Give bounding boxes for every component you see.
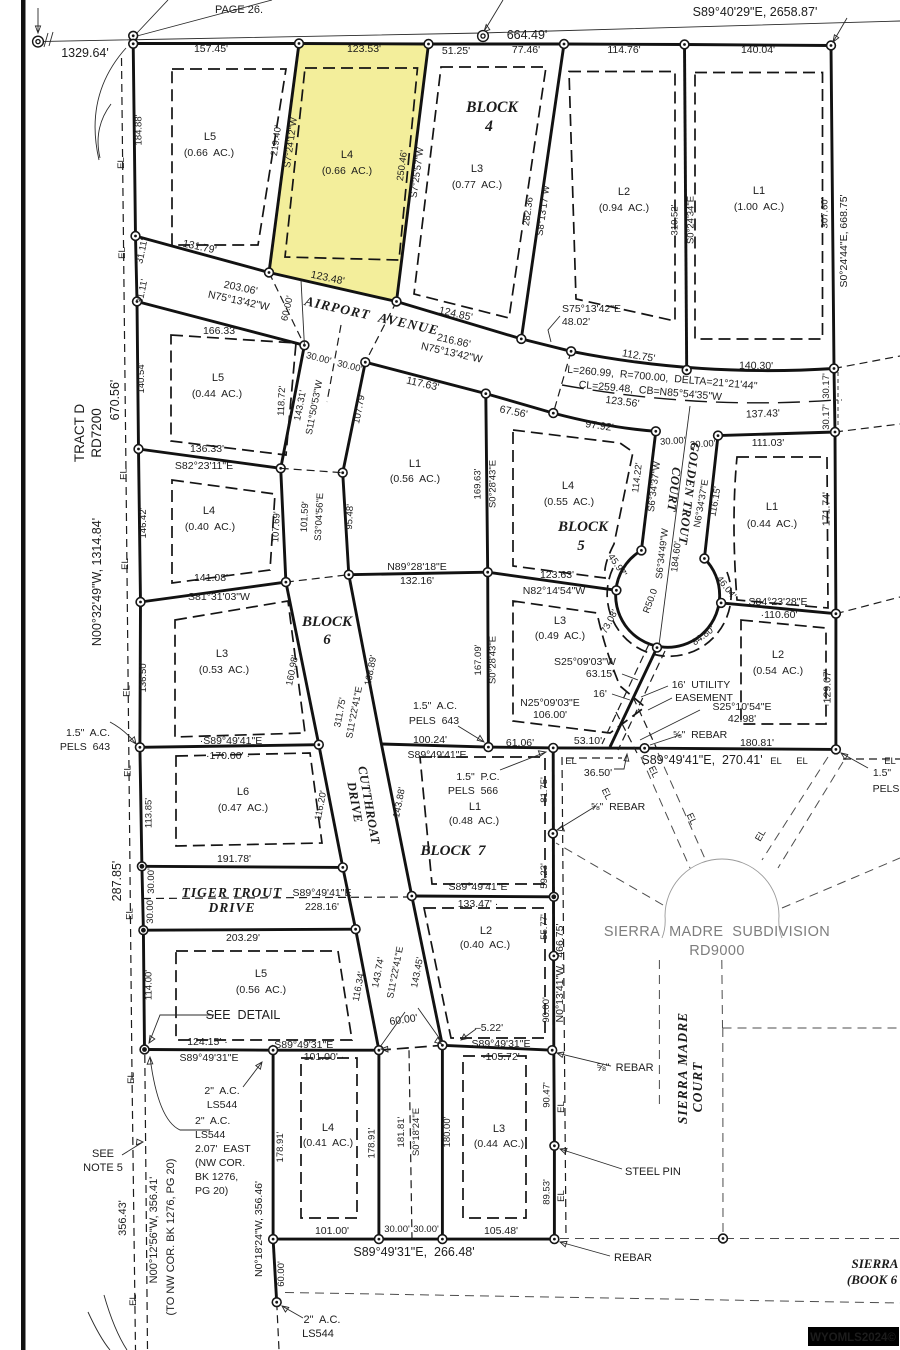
svg-text:STEEL PIN: STEEL PIN: [625, 1166, 681, 1178]
svg-text:S75°13'42"E: S75°13'42"E: [562, 303, 621, 315]
svg-text:N00°32'49"W, 1314.84': N00°32'49"W, 1314.84': [90, 518, 104, 646]
svg-text:PELS 643: PELS 643: [409, 715, 459, 727]
svg-text:S89°49'31"E: S89°49'31"E: [472, 1038, 531, 1050]
svg-text:RD9000: RD9000: [689, 943, 745, 959]
svg-text:PELS 566: PELS 566: [448, 785, 498, 797]
svg-text:NOTE 5: NOTE 5: [83, 1162, 123, 1174]
svg-text:WYOMLS2024©: WYOMLS2024©: [810, 1332, 896, 1344]
svg-text:(0.55 AC.): (0.55 AC.): [544, 496, 594, 508]
svg-text:S84°23'28"E: S84°23'28"E: [749, 596, 808, 608]
svg-text:PELS: PELS: [873, 783, 900, 795]
svg-text:L3: L3: [471, 163, 483, 175]
svg-text:⅝" REBAR: ⅝" REBAR: [591, 801, 646, 813]
svg-text:EL: EL: [119, 468, 130, 480]
svg-text:310.52': 310.52': [670, 204, 681, 235]
svg-text:30.00': 30.00': [384, 1224, 410, 1235]
svg-text:124.15' ·: 124.15' ·: [187, 1036, 228, 1048]
svg-text:101.00': 101.00': [315, 1225, 349, 1237]
svg-text:167.09': 167.09': [473, 644, 484, 675]
svg-text:(0.94 AC.): (0.94 AC.): [599, 202, 649, 214]
svg-text:2.07' EAST: 2.07' EAST: [195, 1143, 251, 1155]
svg-text:30.00': 30.00': [660, 435, 686, 448]
svg-text:L5: L5: [212, 372, 224, 384]
svg-text:48.02': 48.02': [562, 316, 590, 328]
svg-text:S89°49'41"E: S89°49'41"E: [408, 749, 467, 761]
svg-text:157.45': 157.45': [194, 43, 228, 55]
svg-text:1.5": 1.5": [873, 767, 892, 779]
svg-text:51.25': 51.25': [442, 45, 470, 57]
svg-text:287.85': 287.85': [110, 861, 124, 902]
svg-text:53.10': 53.10': [574, 735, 602, 747]
svg-text:(0.56 AC.): (0.56 AC.): [236, 984, 286, 996]
svg-text:101.59': 101.59': [299, 501, 312, 533]
svg-text:664.49': 664.49': [507, 28, 548, 42]
svg-text:⅝" REBAR: ⅝" REBAR: [673, 729, 728, 741]
svg-text:BLOCK: BLOCK: [465, 99, 519, 116]
svg-text:(0.44 AC.): (0.44 AC.): [192, 388, 242, 400]
svg-text:EL: EL: [117, 247, 128, 259]
svg-text:SIERRA MADRE SUBDIVISION: SIERRA MADRE SUBDIVISION: [604, 924, 830, 940]
svg-text:95.48': 95.48': [344, 504, 356, 530]
svg-text:166.33': 166.33': [203, 325, 237, 337]
svg-text:L4: L4: [322, 1122, 334, 1134]
svg-text:191.78': 191.78': [217, 853, 251, 865]
svg-text:105.48': 105.48': [484, 1225, 518, 1237]
svg-text:LS544: LS544: [195, 1129, 226, 1141]
svg-text:EL: EL: [125, 908, 136, 920]
svg-text:114.00': 114.00': [144, 970, 155, 1000]
svg-text:S0°28'43"E: S0°28'43"E: [488, 636, 499, 684]
svg-text:EL: EL: [128, 1294, 139, 1306]
svg-text:EL: EL: [884, 756, 896, 767]
svg-text:·170.00' ·: ·170.00' ·: [206, 750, 250, 762]
svg-text:EL: EL: [796, 756, 808, 767]
svg-text:16': 16': [593, 688, 607, 700]
svg-text:181.81': 181.81': [396, 1116, 407, 1147]
svg-text:N00°12'56"W, 356.41': N00°12'56"W, 356.41': [148, 1177, 160, 1284]
svg-text:140.30': 140.30': [739, 360, 773, 373]
svg-text:S89°49'31"E: S89°49'31"E: [180, 1052, 239, 1064]
svg-text:S89°49'31"E, 266.48': S89°49'31"E, 266.48': [353, 1245, 474, 1259]
svg-text:N89°28'18"E: N89°28'18"E: [387, 561, 447, 573]
svg-text:111.03': 111.03': [752, 437, 785, 449]
svg-text:(0.53 AC.): (0.53 AC.): [199, 664, 249, 676]
svg-text:184.88': 184.88': [134, 114, 145, 145]
svg-text:BK 1276,: BK 1276,: [195, 1171, 238, 1183]
svg-text:(0.49 AC.): (0.49 AC.): [535, 630, 585, 642]
svg-text:TRACT D: TRACT D: [72, 404, 87, 463]
svg-text:BLOCK: BLOCK: [301, 614, 353, 630]
svg-text:EL: EL: [122, 685, 133, 697]
svg-text:L2: L2: [618, 186, 630, 198]
svg-text:S82°23'11"E: S82°23'11"E: [175, 460, 233, 472]
svg-text:PELS 643: PELS 643: [60, 741, 110, 753]
svg-text:118.72': 118.72': [276, 385, 289, 416]
svg-text:670.56': 670.56': [108, 380, 122, 421]
svg-text:TIGER TROUT: TIGER TROUT: [182, 885, 283, 900]
svg-text:171.74': 171.74': [821, 492, 833, 526]
svg-text:1.5" A.C.: 1.5" A.C.: [66, 727, 110, 739]
svg-text:2" A.C.: 2" A.C.: [195, 1115, 230, 1127]
svg-text:36.50': 36.50': [584, 767, 612, 779]
svg-text:178.91': 178.91': [275, 1131, 286, 1162]
svg-text:(0.54 AC.): (0.54 AC.): [753, 665, 803, 677]
svg-text:42.98': 42.98': [728, 713, 756, 725]
svg-text:30.00': 30.00': [413, 1224, 439, 1235]
svg-text:S0°18'24"E: S0°18'24"E: [411, 1108, 422, 1156]
svg-text:132.16': 132.16': [400, 575, 434, 587]
svg-text:(TO NW COR. BK 1276, PG 20): (TO NW COR. BK 1276, PG 20): [165, 1159, 177, 1316]
svg-text:L2: L2: [772, 649, 784, 661]
svg-text:89.53': 89.53': [542, 1179, 553, 1205]
svg-text:L4: L4: [562, 480, 574, 492]
svg-text:(0.44 AC.): (0.44 AC.): [747, 518, 797, 530]
svg-text:(0.66 AC.): (0.66 AC.): [184, 147, 234, 159]
svg-text:30.00': 30.00': [146, 868, 157, 894]
svg-text:16' UTILITY: 16' UTILITY: [672, 679, 731, 691]
svg-text:PAGE 26.: PAGE 26.: [215, 4, 263, 16]
svg-text:140.04': 140.04': [741, 44, 775, 56]
svg-text:L5: L5: [255, 968, 267, 980]
svg-text:307.60': 307.60': [820, 197, 831, 228]
svg-text:EL: EL: [123, 765, 134, 777]
svg-text:L4: L4: [341, 149, 353, 161]
svg-text:PG 20): PG 20): [195, 1185, 228, 1197]
svg-text:30.17': 30.17': [821, 373, 832, 399]
svg-text:S89°49'41"E, 270.41': S89°49'41"E, 270.41': [641, 753, 762, 767]
svg-text:S0°24'34"E: S0°24'34"E: [686, 196, 697, 244]
svg-text:L1: L1: [753, 185, 765, 197]
svg-text:SIERRA: SIERRA: [852, 1256, 899, 1271]
svg-text:5: 5: [577, 538, 585, 554]
svg-text:EL: EL: [116, 157, 127, 169]
svg-text:(0.56 AC.): (0.56 AC.): [390, 473, 440, 485]
svg-text:(0.40 AC.): (0.40 AC.): [185, 521, 235, 533]
svg-text:RD7200: RD7200: [89, 408, 104, 458]
svg-text:90.47': 90.47': [542, 1082, 553, 1108]
svg-text:63.15': 63.15': [586, 668, 614, 680]
svg-text:2" A.C.: 2" A.C.: [204, 1085, 239, 1097]
svg-text:–5.22': –5.22': [475, 1022, 503, 1034]
svg-text:137.43': 137.43': [746, 407, 781, 420]
svg-text:·110.60': ·110.60': [761, 609, 798, 621]
svg-text:S89°40'29"E, 2658.87': S89°40'29"E, 2658.87': [693, 5, 818, 19]
svg-text:169.63': 169.63': [473, 468, 484, 499]
svg-text:114.76': 114.76': [607, 44, 640, 56]
svg-text:141.08': 141.08': [194, 572, 228, 584]
svg-text:228.16': 228.16': [305, 901, 339, 913]
svg-text:L5: L5: [204, 131, 216, 143]
svg-text:203.29': 203.29': [226, 932, 260, 944]
svg-text:LS544: LS544: [207, 1099, 238, 1111]
svg-text:2" A.C.: 2" A.C.: [304, 1314, 341, 1326]
svg-text:SEE: SEE: [92, 1148, 114, 1160]
svg-text:123.63': 123.63': [540, 569, 574, 581]
svg-text:1329.64': 1329.64': [61, 46, 109, 60]
svg-text:·S89°49'31"E: ·S89°49'31"E: [271, 1039, 333, 1051]
svg-text:(0.48 AC.): (0.48 AC.): [449, 815, 499, 827]
svg-text:30.00': 30.00': [145, 898, 156, 924]
svg-text:N82°14'54"W: N82°14'54"W: [523, 585, 586, 597]
svg-text:180.81': 180.81': [740, 737, 774, 749]
svg-text:N25°09'03"E: N25°09'03"E: [520, 697, 580, 709]
svg-text:178.91': 178.91': [367, 1127, 378, 1158]
svg-text:(NW COR.: (NW COR.: [195, 1157, 245, 1169]
svg-text:(0.66 AC.): (0.66 AC.): [322, 165, 372, 177]
svg-text:113.85': 113.85': [144, 798, 155, 828]
svg-text:L3: L3: [554, 615, 566, 627]
svg-text:·129.07': ·129.07': [822, 669, 834, 707]
svg-text:107.69': 107.69': [270, 511, 283, 543]
svg-text:1.5" P.C.: 1.5" P.C.: [456, 771, 499, 783]
svg-text:(0.40 AC.): (0.40 AC.): [460, 939, 510, 951]
svg-text:356.43': 356.43': [117, 1200, 129, 1236]
svg-text:L1: L1: [409, 458, 421, 470]
svg-text:BLOCK 7: BLOCK 7: [419, 843, 486, 859]
svg-text:6: 6: [323, 632, 331, 648]
svg-text:L6: L6: [237, 786, 249, 798]
svg-text:123.53': 123.53': [347, 43, 381, 55]
svg-text:S25°10'54"E: S25°10'54"E: [713, 701, 772, 713]
svg-text:30.17': 30.17': [821, 404, 832, 430]
svg-text:101.00' ·: 101.00' ·: [304, 1051, 345, 1063]
svg-text:L4: L4: [203, 505, 215, 517]
svg-text:106.00': 106.00': [533, 709, 567, 721]
svg-text:S89°49'41"E: S89°49'41"E: [293, 887, 352, 899]
svg-text:S89°49'41"E: S89°49'41"E: [449, 881, 508, 893]
svg-text:EL: EL: [770, 756, 782, 767]
svg-text:EL: EL: [126, 1072, 137, 1084]
svg-text:S81°31'03"W: S81°31'03"W: [188, 591, 250, 603]
svg-text:L1: L1: [469, 801, 481, 813]
svg-text:136.33': 136.33': [190, 443, 224, 455]
svg-text:60.00': 60.00': [276, 1261, 287, 1287]
svg-text:(0.47 AC.): (0.47 AC.): [218, 802, 268, 814]
svg-text:COURT: COURT: [690, 1062, 705, 1113]
svg-text:EL: EL: [120, 558, 131, 570]
svg-text:100.24': 100.24': [413, 734, 447, 746]
svg-text:59.23': 59.23': [539, 863, 550, 889]
svg-text:⅝" REBAR: ⅝" REBAR: [596, 1062, 653, 1074]
svg-text:(0.41 AC.): (0.41 AC.): [303, 1137, 353, 1149]
svg-text:L1: L1: [766, 501, 778, 513]
svg-text:(BOOK 6: (BOOK 6: [847, 1272, 898, 1287]
svg-text:S0°28'43"E: S0°28'43"E: [488, 460, 499, 508]
svg-text:90.00': 90.00': [541, 997, 552, 1023]
svg-text:N0°18'24"W, 356.46': N0°18'24"W, 356.46': [253, 1181, 265, 1277]
svg-text:REBAR: REBAR: [614, 1252, 652, 1264]
svg-text:146.42': 146.42': [138, 507, 149, 538]
svg-text:BLOCK: BLOCK: [557, 519, 609, 535]
svg-text:1.5" A.C.: 1.5" A.C.: [413, 700, 457, 712]
svg-text:SEE DETAIL: SEE DETAIL: [206, 1008, 281, 1022]
svg-text:S25°09'03"W: S25°09'03"W: [554, 656, 616, 668]
svg-text:·105.72': ·105.72': [482, 1051, 520, 1063]
svg-text:55.77': 55.77': [539, 914, 550, 940]
svg-text:L3: L3: [493, 1123, 505, 1135]
svg-text:(0.44 AC.): (0.44 AC.): [474, 1138, 524, 1150]
svg-text:81.75': 81.75': [539, 777, 550, 803]
svg-text:DRIVE: DRIVE: [207, 900, 255, 915]
svg-text:(1.00 AC.): (1.00 AC.): [734, 201, 784, 213]
svg-text:61.06': 61.06': [506, 737, 534, 749]
svg-text:L3: L3: [216, 648, 228, 660]
svg-text:LS544: LS544: [302, 1328, 334, 1340]
svg-text:180.00': 180.00': [442, 1116, 453, 1147]
svg-text:L2: L2: [480, 925, 492, 937]
svg-text:4: 4: [484, 118, 493, 135]
svg-text:136.50': 136.50': [138, 661, 149, 692]
svg-text:(0.77 AC.): (0.77 AC.): [452, 179, 502, 191]
svg-text:133.47' ·: 133.47' ·: [458, 898, 499, 910]
svg-text:140.54': 140.54': [136, 362, 147, 393]
svg-text:S0°24'44"E, 668.75': S0°24'44"E, 668.75': [838, 194, 850, 287]
svg-text:SIERRA MADRE: SIERRA MADRE: [675, 1012, 690, 1124]
svg-text:·S89°49'41"E: ·S89°49'41"E: [200, 735, 262, 747]
svg-text:77.46': 77.46': [512, 44, 540, 56]
